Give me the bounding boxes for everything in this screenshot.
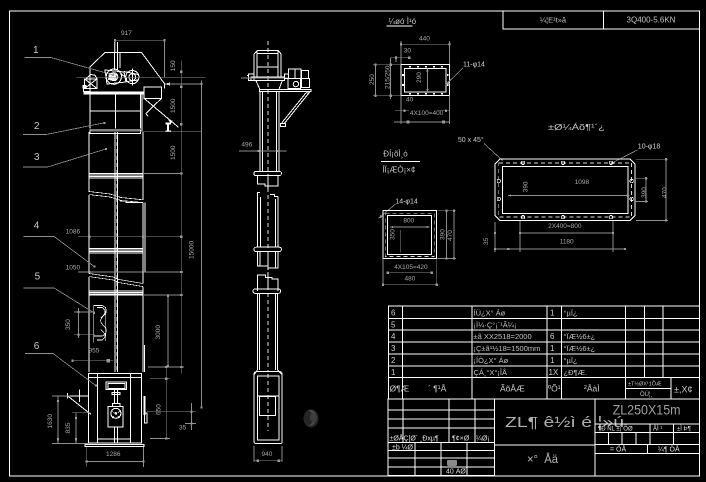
svg-text:ÃõÅÆ: ÃõÅÆ: [500, 384, 525, 394]
svg-text:4: 4: [391, 332, 396, 341]
svg-text:Ø¶Æ: Ø¶Æ: [390, 384, 410, 394]
svg-text:ÇÁ¸°X°¡ÎÅ: ÇÁ¸°X°¡ÎÅ: [474, 368, 508, 377]
svg-text:940: 940: [262, 451, 273, 458]
svg-text:11-φ14: 11-φ14: [463, 62, 485, 69]
svg-text:1X: 1X: [549, 368, 559, 377]
svg-text:= ÖÅ: = ÖÅ: [610, 445, 626, 454]
svg-text:ÍÏ¡ÆÒ¡×¢: ÍÏ¡ÆÒ¡×¢: [382, 166, 415, 175]
svg-text:496: 496: [241, 142, 252, 149]
svg-text:°µÏ¿: °µÏ¿: [564, 356, 578, 365]
svg-text:°µÏ¿: °µÏ¿: [564, 309, 578, 318]
svg-text:¸Ðxµ¶: ¸Ðxµ¶: [420, 436, 439, 443]
svg-text:¼øó Ì¹ó: ¼øó Ì¹ó: [389, 17, 417, 26]
svg-text:390: 390: [641, 187, 648, 198]
svg-text:4X105=420: 4X105=420: [394, 264, 428, 271]
svg-text:1: 1: [550, 344, 555, 353]
svg-text:¼Ø¡: ¼Ø¡: [476, 436, 490, 443]
svg-text:¼¶ ÖÅ: ¼¶ ÖÅ: [658, 445, 680, 454]
svg-text:±ØÅÇ|Ø´: ±ØÅÇ|Ø´: [390, 434, 419, 443]
svg-text:917: 917: [121, 30, 132, 37]
svg-text:15000: 15000: [189, 241, 196, 259]
svg-text:¶¢×Ø: ¶¢×Ø: [452, 436, 470, 443]
svg-text:6: 6: [34, 341, 40, 352]
svg-text:±Ø¼Áõ¶¹´¿: ±Ø¼Áõ¶¹´¿: [548, 122, 605, 132]
svg-text:1: 1: [550, 356, 555, 365]
svg-text:2: 2: [391, 356, 396, 365]
svg-text:1086: 1086: [66, 229, 81, 236]
svg-text:3000: 3000: [155, 325, 162, 340]
svg-text:440: 440: [419, 36, 430, 43]
svg-text:±b ¼Ø: ±b ¼Ø: [392, 445, 414, 452]
svg-text:´ ¶¹Å: ´ ¶¹Å: [428, 384, 447, 394]
svg-text:¡Ç±ã¹½18=1500mm: ¡Ç±ã¹½18=1500mm: [474, 344, 541, 353]
svg-text:1098: 1098: [575, 179, 590, 186]
svg-text:5: 5: [35, 272, 41, 283]
svg-text:290: 290: [416, 72, 423, 83]
svg-text:10-φ18: 10-φ18: [638, 143, 661, 150]
svg-text:²ÅàÌ: ²ÅàÌ: [584, 384, 600, 394]
svg-text:30: 30: [404, 48, 412, 55]
svg-text:ÐÍ¡õÌ¸ó: ÐÍ¡õÌ¸ó: [383, 150, 408, 159]
svg-text:835: 835: [65, 422, 72, 433]
svg-text:4: 4: [34, 221, 40, 232]
svg-text:¡ÍÒ¿X° Áø: ¡ÍÒ¿X° Áø: [474, 356, 509, 365]
svg-text:1: 1: [391, 368, 396, 377]
svg-text:ÅÌ ¹: ÅÌ ¹: [653, 426, 662, 433]
svg-text:¼¦E¹t»â: ¼¦E¹t»â: [540, 16, 567, 25]
svg-text:°ÏÆ½6±¿: °ÏÆ½6±¿: [564, 344, 596, 353]
svg-text:470: 470: [662, 187, 669, 198]
svg-text:350: 350: [65, 319, 72, 330]
svg-text:1: 1: [33, 45, 39, 56]
svg-text:250: 250: [369, 74, 376, 85]
svg-text:¿Ð¶Æ.: ¿Ð¶Æ.: [564, 368, 588, 377]
svg-text:3Q400-5.6KN: 3Q400-5.6KN: [627, 16, 676, 25]
svg-text:215/250: 215/250: [384, 65, 391, 89]
svg-text:6: 6: [550, 332, 555, 341]
svg-text:390: 390: [523, 181, 530, 192]
svg-text:350: 350: [390, 229, 397, 240]
svg-text:4X100=400: 4X100=400: [410, 110, 444, 117]
svg-text:¡Ï¼·Ç°¡´¹Â¼¡: ¡Ï¼·Ç°¡´¹Â¼¡: [474, 320, 517, 329]
svg-text:35: 35: [483, 237, 490, 245]
svg-text:ZL250X15m: ZL250X15m: [613, 402, 681, 418]
svg-text:650: 650: [156, 404, 163, 415]
svg-text:1: 1: [550, 309, 555, 318]
svg-text:480: 480: [405, 275, 416, 282]
svg-text:150: 150: [170, 60, 177, 71]
svg-text:50 x 45°: 50 x 45°: [458, 136, 484, 144]
svg-text:±ã XX2518=2000: ±ã XX2518=2000: [474, 332, 532, 341]
svg-text:1630: 1630: [47, 414, 54, 429]
svg-text:1180: 1180: [560, 239, 574, 246]
svg-text:¶Ð ÑL ±¡ ÕØ: ¶Ð ÑL ±¡ ÕØ: [598, 426, 633, 433]
svg-text:470: 470: [447, 230, 454, 241]
svg-text:°ÏÆ½6±¿: °ÏÆ½6±¿: [564, 332, 596, 341]
svg-text:1286: 1286: [106, 451, 121, 458]
svg-text:35: 35: [179, 425, 187, 432]
svg-text:40: 40: [406, 97, 414, 104]
svg-text:6: 6: [391, 309, 396, 318]
svg-text:1500: 1500: [170, 145, 177, 160]
svg-text:1500: 1500: [170, 98, 177, 113]
svg-text:ÖÚ¦¸: ÖÚ¦¸: [640, 391, 653, 398]
svg-text:±Ì Þ¶: ±Ì Þ¶: [677, 426, 691, 433]
svg-text:±T½ØX¹1ÕÆ: ±T½ØX¹1ÕÆ: [628, 381, 662, 388]
svg-text:1050: 1050: [66, 264, 81, 271]
svg-text:2: 2: [34, 121, 40, 132]
svg-text:955: 955: [89, 348, 100, 355]
svg-text:3: 3: [34, 152, 40, 163]
svg-text:5: 5: [391, 320, 396, 329]
svg-text:390: 390: [440, 229, 447, 240]
svg-text:40 ÁØ: 40 ÁØ: [446, 466, 466, 475]
svg-text:3: 3: [391, 344, 396, 353]
svg-text:±,X¢: ±,X¢: [674, 385, 692, 395]
svg-text:2X400=800: 2X400=800: [548, 223, 582, 230]
svg-text:14-φ14: 14-φ14: [395, 199, 418, 206]
svg-text:800: 800: [403, 218, 414, 225]
svg-text:ºÕ¹: ºÕ¹: [548, 384, 561, 394]
svg-text:×° Åä: ×° Åä: [527, 451, 558, 466]
svg-text:ÍÜ¿X° Áø: ÍÜ¿X° Áø: [474, 309, 506, 318]
